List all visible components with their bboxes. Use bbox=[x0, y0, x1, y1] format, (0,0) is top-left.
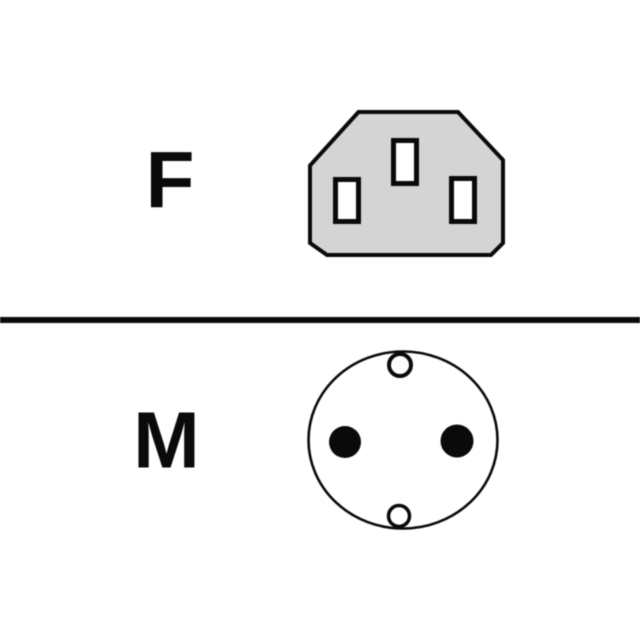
svg-text:F: F bbox=[146, 135, 195, 224]
svg-text:M: M bbox=[133, 396, 200, 485]
